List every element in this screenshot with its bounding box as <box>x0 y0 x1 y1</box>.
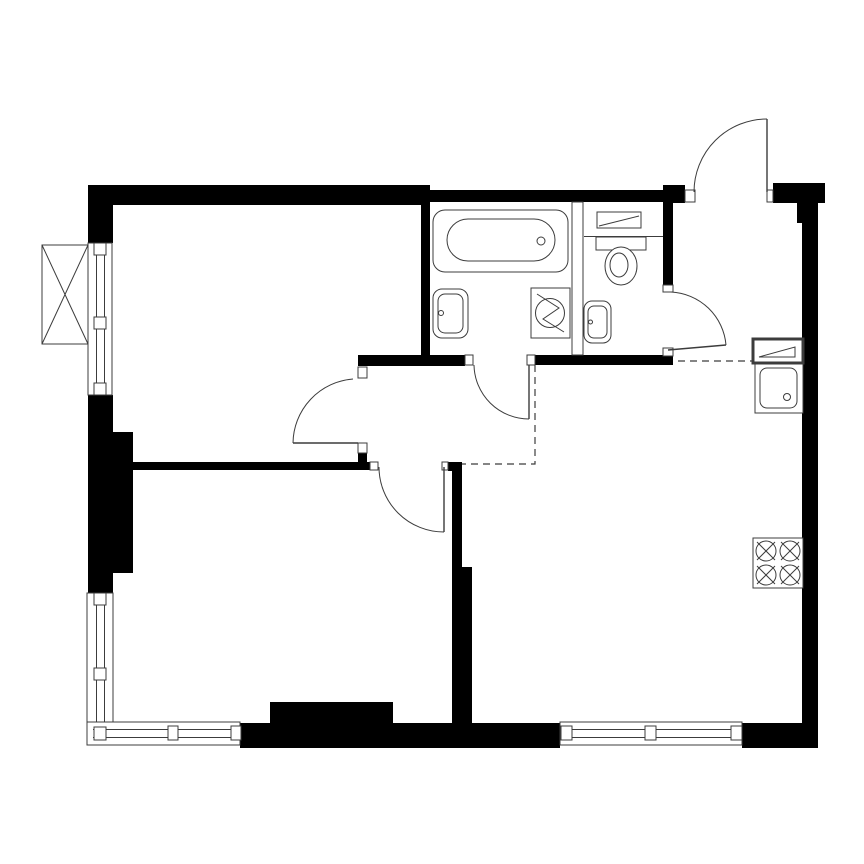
window-livingroom-cap <box>94 383 106 395</box>
wall-bedroom-living-thin <box>452 462 462 567</box>
wall-right <box>802 203 818 723</box>
post-bedroom-left <box>370 462 378 470</box>
wc-door-leaf <box>668 345 726 350</box>
wall-left-mid <box>88 395 113 432</box>
bathroom-door-swing <box>474 365 529 419</box>
post-entry-right <box>767 190 773 202</box>
window-living-cap <box>731 726 742 740</box>
wall-bottom-ledge <box>270 702 393 723</box>
window-living-cap <box>645 726 656 740</box>
window-livingroom-cap <box>94 243 106 255</box>
wall-left-top <box>88 185 113 243</box>
wall-top-bathroom <box>430 190 673 202</box>
floor-plan-svg <box>0 0 864 864</box>
wc-shelf <box>597 212 641 228</box>
livingroom-door-swing <box>293 379 353 443</box>
wall-partition-bath-wc <box>572 202 583 355</box>
post-wc-top <box>663 285 673 292</box>
window-living-cap <box>561 726 572 740</box>
wall-top-left <box>88 185 430 205</box>
wall-bottom-right <box>742 723 818 748</box>
window-bedroom-cap <box>94 668 106 680</box>
wall-bottom-middle <box>240 723 560 748</box>
wall-wc-bottom <box>535 355 673 365</box>
bedroom-door-swing <box>379 467 444 532</box>
wc-door-swing <box>671 292 726 345</box>
window-bedroom-corner-cap <box>94 727 106 740</box>
window-bedroom-cap <box>94 593 106 605</box>
wall-top-entry-left <box>663 185 685 203</box>
post-bedroom-right <box>442 462 448 470</box>
wall-wc-right-upper <box>663 202 673 285</box>
window-bedroom-bottom-sill <box>87 722 240 745</box>
window-bedroom-cap <box>168 726 178 740</box>
floor-plan <box>0 0 864 864</box>
window-bedroom-cap <box>231 726 241 740</box>
post-room-bottom <box>358 443 367 453</box>
wall-bedroom-living-thick <box>452 567 472 723</box>
post-bath-left <box>465 355 473 365</box>
wall-left-pier <box>88 432 133 573</box>
wall-hall-top <box>358 355 465 366</box>
wall-room-door-stub <box>358 453 367 463</box>
wall-bedroom-top <box>113 462 370 470</box>
wall-bathroom-left <box>421 203 430 356</box>
wall-left-lower <box>88 573 113 593</box>
post-room-top <box>358 367 367 378</box>
wall-top-entry-right <box>773 183 825 203</box>
entrance-door-swing <box>694 119 767 192</box>
post-bath-right <box>527 355 535 365</box>
zone-boundary-dashed <box>462 365 535 464</box>
window-livingroom-cap <box>94 317 106 329</box>
